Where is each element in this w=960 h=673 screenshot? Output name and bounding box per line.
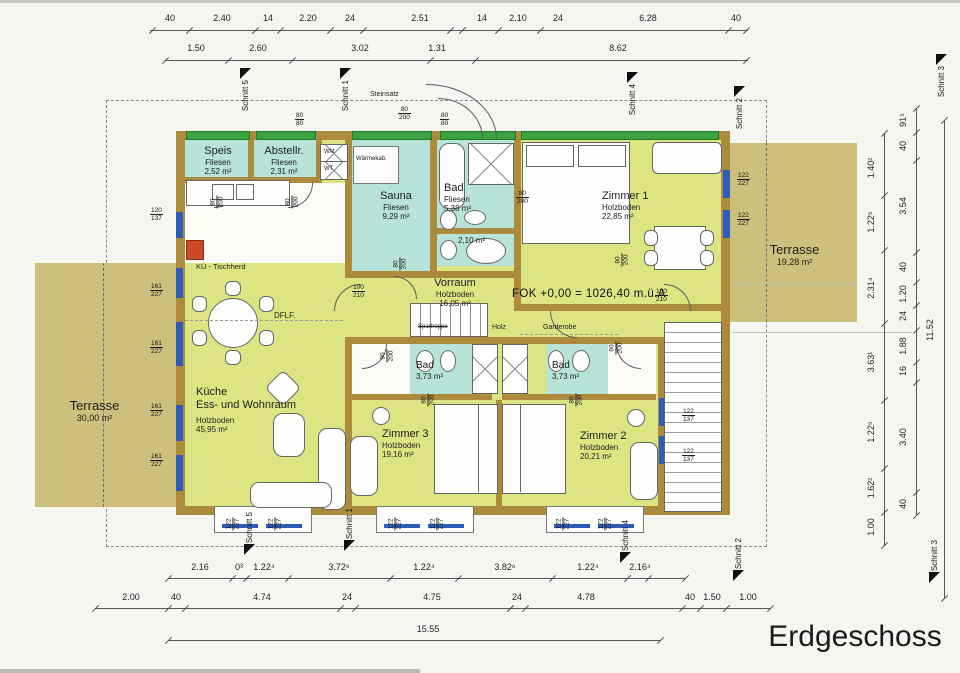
room-label-zimmer1: Zimmer 1 Holzboden 22,85 m² — [602, 190, 697, 222]
right-outer-tick — [913, 489, 920, 496]
section-triangle-icon — [240, 68, 251, 79]
top-row-2-value: 3.02 — [351, 43, 369, 53]
room-label-sauna: Sauna Fliesen 9,29 m² — [366, 190, 426, 222]
section-triangle-icon — [734, 86, 745, 97]
top-row-1-value: 14 — [477, 13, 487, 23]
chair — [259, 330, 274, 346]
right-inner-tick — [881, 542, 888, 549]
chair — [644, 230, 658, 246]
room-label-terrasse-left: Terrasse 30,00 m² — [52, 398, 137, 424]
window-blue — [428, 524, 464, 528]
bottom-row-1-value: 2.16⁴ — [629, 562, 650, 572]
top-row-2-tick — [225, 57, 232, 64]
chair — [225, 350, 241, 365]
top-row-2-tick — [162, 57, 169, 64]
right-inner-line — [884, 133, 885, 545]
right-inner-value: 1.62² — [866, 478, 876, 499]
drawing-title: Erdgeschoss — [765, 620, 945, 654]
side-table — [372, 407, 390, 425]
bottom-row-2-tick — [723, 605, 730, 612]
heat-cabin — [353, 146, 399, 184]
top-row-1-value: 2.20 — [299, 13, 317, 23]
window-green — [521, 131, 719, 140]
bottom-row-1-tick — [682, 575, 689, 582]
bottom-row-2-value: 1.50 — [703, 592, 721, 602]
right-inner-tick — [881, 465, 888, 472]
right-outer-tick — [913, 249, 920, 256]
top-row-1-tick — [327, 27, 334, 34]
chair — [700, 250, 714, 266]
kitchen-sink — [236, 184, 254, 200]
bottom-row-1-value: 3.72⁶ — [328, 562, 349, 572]
bottom-row-1-tick — [285, 575, 292, 582]
top-row-1-value: 6.28 — [639, 13, 657, 23]
bottom-row-1-tick — [549, 575, 556, 582]
window-blue — [266, 524, 302, 528]
window-blue — [554, 524, 590, 528]
room-label-zimmer3: Zimmer 3 Holzboden 19,16 m² — [382, 428, 454, 460]
bottom-row-3-line — [168, 640, 660, 641]
bottom-row-1-tick — [455, 575, 462, 582]
right-outer-value: 1.20 — [898, 285, 908, 303]
window-blue — [723, 170, 730, 198]
window-green — [186, 131, 250, 140]
top-row-1-line — [150, 30, 748, 31]
right-outer-tick — [913, 327, 920, 334]
witness-line — [732, 283, 856, 284]
chair — [644, 250, 658, 266]
section-label: Schnitt 3 — [938, 66, 946, 97]
right-outer-tick — [913, 359, 920, 366]
top-row-1-value: 2.40 — [213, 13, 231, 23]
bottom-row-3-tick — [165, 637, 172, 644]
pillow-line — [478, 404, 479, 492]
right-inner-value: 1.00 — [866, 518, 876, 536]
bottom-row-1-tick — [229, 575, 236, 582]
window-blue — [176, 405, 183, 441]
top-row-2-tick — [289, 57, 296, 64]
right-overall-value: 11.52 — [925, 319, 935, 341]
top-row-2-tick — [743, 57, 750, 64]
kue-tischherd-label: KÜ - Tischherd — [196, 262, 246, 271]
bottom-row-2-tick — [92, 605, 99, 612]
right-inner-tick — [881, 397, 888, 404]
shower — [502, 344, 528, 394]
top-row-1-tick — [459, 27, 466, 34]
right-outer-value: 16 — [898, 366, 908, 376]
top-row-1-value: 40 — [731, 13, 741, 23]
right-outer-tick — [913, 129, 920, 136]
dining-table — [208, 298, 258, 348]
right-inner-value: 1.22⁵ — [866, 421, 876, 442]
top-row-1-tick — [743, 27, 750, 34]
terrace-right — [730, 143, 857, 322]
room-label-terrasse-right: Terrasse 19,28 m² — [752, 242, 837, 268]
top-row-2-value: 1.31 — [428, 43, 446, 53]
top-row-1-value: 14 — [263, 13, 273, 23]
right-inner-value: 3.63¹ — [866, 352, 876, 373]
top-row-1-tick — [252, 27, 259, 34]
bottom-row-2-value: 24 — [342, 592, 352, 602]
shower — [472, 344, 498, 394]
right-inner-value: 1.40² — [866, 158, 876, 179]
bottom-row-2-tick — [767, 605, 774, 612]
bottom-row-2-tick — [182, 605, 189, 612]
terrace-left — [35, 263, 176, 507]
window-green — [352, 131, 432, 140]
bottom-row-1-value: 0³ — [235, 562, 243, 572]
right-overall-tick — [941, 595, 948, 602]
heat-cabin-label: Wärmekab. — [356, 156, 387, 162]
right-inner-tick — [881, 320, 888, 327]
partition — [430, 131, 437, 277]
shower — [468, 143, 514, 185]
top-row-2-value: 1.50 — [187, 43, 205, 53]
bay-window — [376, 506, 474, 533]
bay-window — [214, 506, 312, 533]
right-inner-value: 1.22⁵ — [866, 211, 876, 232]
room-label-bad-top: Bad Fliesen 5,38 m² — [444, 182, 496, 214]
right-outer-value: 1.88 — [898, 337, 908, 355]
scan-edge-top — [0, 0, 960, 3]
bottom-row-3-tick — [657, 637, 664, 644]
section-marker: Schnitt 3 — [936, 54, 947, 97]
steinsatz-label: Steinsatz — [370, 91, 399, 98]
bottom-row-1-tick — [165, 575, 172, 582]
bed — [502, 404, 566, 494]
top-row-1-value: 40 — [165, 13, 175, 23]
pillow — [578, 145, 626, 167]
window-blue — [176, 212, 183, 238]
window-blue — [176, 268, 183, 298]
right-outer-tick — [913, 279, 920, 286]
top-row-1-tick — [495, 27, 502, 34]
bottom-row-1-tick — [387, 575, 394, 582]
room-label-bad-left: Bad 3,73 m² — [416, 360, 468, 381]
right-outer-value: 3.54 — [898, 197, 908, 215]
room-label-kueche: Küche Ess- und Wohnraum Holzboden 45,95 … — [196, 386, 316, 435]
room-label-wc: 2,10 m² — [458, 236, 510, 245]
section-triangle-icon — [627, 72, 638, 83]
room-label-bad-right: Bad 3,73 m² — [552, 360, 604, 381]
right-inner-tick — [881, 247, 888, 254]
top-row-1-value: 24 — [345, 13, 355, 23]
top-row-1-tick — [149, 27, 156, 34]
wardrobe-line — [520, 334, 618, 335]
right-outer-tick — [913, 512, 920, 519]
right-overall-line — [944, 120, 945, 598]
sofa — [250, 482, 332, 508]
top-row-1-value: 2.10 — [509, 13, 527, 23]
partition — [514, 131, 521, 311]
dflf-label: DFLF. — [274, 311, 295, 320]
bottom-row-2-value: 2.00 — [122, 592, 140, 602]
section-triangle-icon — [340, 68, 351, 79]
top-row-2-tick — [472, 57, 479, 64]
bottom-row-1-value: 1.22⁴ — [253, 562, 274, 572]
room-label-vorraum: Vorraum Holzboden 16,05 m² — [415, 277, 495, 309]
fok-elevation-note: FOK +0,00 = 1026,40 m.ü.A — [512, 288, 666, 302]
sofa — [350, 436, 378, 496]
bottom-row-2-value: 1.00 — [739, 592, 757, 602]
spartreppe-label: Spartreppe — [418, 324, 448, 330]
right-outer-value: 3.40 — [898, 428, 908, 446]
side-table — [627, 409, 645, 427]
bottom-row-1-line — [168, 578, 685, 579]
window-blue — [598, 524, 634, 528]
section-triangle-icon — [620, 552, 631, 563]
right-outer-value: 91⁵ — [898, 113, 908, 127]
partition — [352, 394, 492, 400]
top-row-1-tick — [537, 27, 544, 34]
top-row-1-tick — [186, 27, 193, 34]
top-row-1-tick — [277, 27, 284, 34]
bottom-row-1-value: 1.22⁴ — [413, 562, 434, 572]
chair — [192, 296, 207, 312]
partition — [430, 228, 514, 234]
stove — [186, 240, 204, 260]
section-marker: Schnitt 3 — [929, 540, 940, 583]
window-blue — [222, 524, 258, 528]
bottom-row-2-value: 4.78 — [577, 592, 595, 602]
room-label-abstellraum: Abstellr. Fliesen 2,31 m² — [252, 145, 316, 177]
top-row-1-value: 2.51 — [411, 13, 429, 23]
pillow-line — [520, 404, 521, 492]
right-outer-value: 24 — [898, 311, 908, 321]
bottom-row-2-tick — [352, 605, 359, 612]
section-label: Schnitt 3 — [931, 540, 939, 571]
bottom-row-1-value: 1.22⁴ — [577, 562, 598, 572]
chair — [225, 281, 241, 296]
bottom-row-2-value: 4.74 — [253, 592, 271, 602]
scan-edge-bottom — [0, 669, 420, 673]
right-outer-line — [916, 108, 917, 515]
bottom-row-2-tick — [679, 605, 686, 612]
witness-line — [732, 332, 912, 333]
top-row-2-value: 2.60 — [249, 43, 267, 53]
bottom-row-2-tick — [165, 605, 172, 612]
section-helper-line — [185, 320, 343, 321]
chair — [259, 296, 274, 312]
bottom-row-2-tick — [337, 605, 344, 612]
wt-label: WT — [324, 166, 333, 172]
right-overall-tick — [941, 117, 948, 124]
exterior-stair — [664, 322, 722, 512]
top-row-1-tick — [360, 27, 367, 34]
top-row-2-tick — [427, 57, 434, 64]
chair — [192, 330, 207, 346]
bottom-row-1-tick — [645, 575, 652, 582]
room-label-speis: Speis Fliesen 2,52 m² — [188, 145, 248, 177]
right-inner-tick — [881, 192, 888, 199]
bottom-row-2-tick — [522, 605, 529, 612]
bottom-row-2-value: 4.75 — [423, 592, 441, 602]
right-outer-tick — [913, 157, 920, 164]
bottom-row-1-value: 2.16 — [191, 562, 209, 572]
bottom-row-3-value: 15.55 — [417, 624, 440, 634]
right-outer-value: 40 — [898, 499, 908, 509]
top-row-1-tick — [725, 27, 732, 34]
window-blue — [723, 210, 730, 238]
bay-window — [546, 506, 644, 533]
bottom-row-1-tick — [243, 575, 250, 582]
bottom-row-1-value: 3.82⁶ — [494, 562, 515, 572]
top-row-2-line — [165, 60, 748, 61]
bottom-row-2-value: 24 — [512, 592, 522, 602]
right-outer-value: 40 — [898, 262, 908, 272]
partition — [502, 394, 656, 400]
top-row-2-value: 8.62 — [609, 43, 627, 53]
terrace-left-dashed-edge — [103, 263, 104, 507]
bottom-row-2-value: 40 — [171, 592, 181, 602]
section-triangle-icon — [936, 54, 947, 65]
room-label-zimmer2: Zimmer 2 Holzboden 20,21 m² — [580, 430, 652, 462]
window-blue — [384, 524, 420, 528]
window-green — [256, 131, 316, 140]
top-row-1-tick — [447, 27, 454, 34]
holz-label: Holz — [492, 324, 506, 331]
sofa — [652, 142, 722, 174]
top-row-1-value: 24 — [553, 13, 563, 23]
window-blue — [176, 455, 183, 491]
section-triangle-icon — [929, 572, 940, 583]
right-outer-tick — [913, 105, 920, 112]
bottom-row-2-line — [95, 608, 770, 609]
right-outer-value: 40 — [898, 141, 908, 151]
chair — [700, 230, 714, 246]
terrace-right-dashed-edge — [766, 143, 767, 322]
bottom-row-2-tick — [697, 605, 704, 612]
partition — [514, 304, 730, 311]
right-outer-tick — [913, 379, 920, 386]
pillow — [526, 145, 574, 167]
right-inner-tick — [881, 130, 888, 137]
right-outer-tick — [913, 302, 920, 309]
floor-plan-scan: Speis Fliesen 2,52 m² Abstellr. Fliesen … — [0, 0, 960, 673]
bottom-row-2-value: 40 — [685, 592, 695, 602]
wm-label: WM — [324, 149, 335, 155]
window-blue — [176, 322, 183, 366]
toilet — [440, 240, 457, 260]
right-inner-value: 2.31⁴ — [866, 277, 876, 298]
right-inner-tick — [881, 509, 888, 516]
kitchen-sink — [212, 184, 234, 200]
bottom-row-2-tick — [507, 605, 514, 612]
bottom-row-1-tick — [624, 575, 631, 582]
section-triangle-icon — [733, 570, 744, 581]
garderobe-label: Garderobe — [543, 324, 576, 331]
table — [654, 226, 706, 270]
